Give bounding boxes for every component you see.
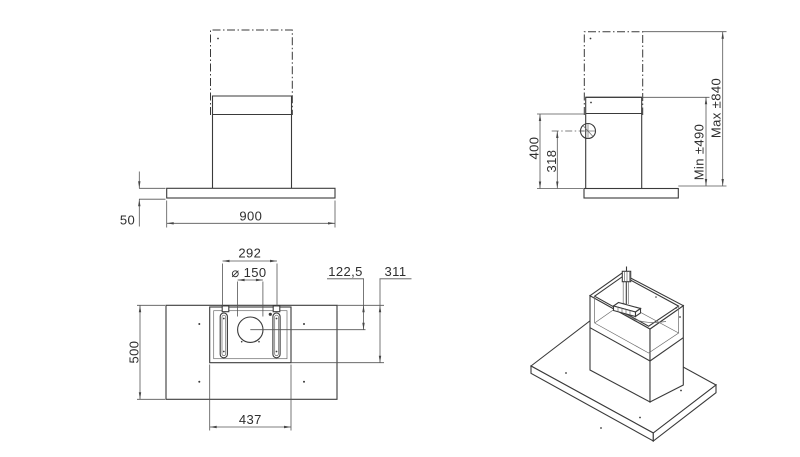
side-max-height-dimension: Max ±840 (643, 32, 727, 186)
front-upper-chimney (211, 30, 293, 115)
plan-view: 292 ⌀ 150 122,5 311 (127, 246, 412, 431)
side-318-dimension: 318 (544, 131, 559, 189)
technical-drawing-page: 50 900 (0, 0, 800, 457)
front-canopy-thickness-dimension: 50 (120, 172, 166, 228)
front-view: 50 900 (120, 30, 335, 228)
dim-label-400: 400 (527, 137, 542, 160)
dim-label-900: 900 (239, 209, 262, 224)
dim-label-122-5: 122,5 (328, 264, 363, 279)
front-lower-chimney (213, 96, 292, 188)
plan-311-dimension: 311 (379, 264, 412, 363)
plan-duct-diameter-dimension: ⌀ 150 (231, 265, 266, 317)
front-canopy-width-dimension: 900 (167, 201, 335, 228)
isometric-view (531, 267, 716, 442)
dim-label-318: 318 (544, 150, 559, 173)
dim-label-500: 500 (127, 341, 142, 364)
dim-label-diameter-150: ⌀ 150 (231, 265, 266, 280)
side-min-height-dimension: Min ±490 (643, 97, 710, 186)
side-upper-chimney (584, 32, 642, 115)
plan-depth-dimension: 500 (127, 305, 166, 399)
dim-label-311: 311 (385, 264, 407, 279)
dim-label-437: 437 (239, 412, 262, 427)
side-canopy (584, 189, 678, 199)
dim-label-min: Min ±490 (692, 124, 707, 181)
plan-122-5-dimension: 122,5 (327, 264, 365, 330)
dim-label-max: Max ±840 (709, 78, 724, 138)
side-lower-chimney (586, 97, 642, 188)
side-view: 400 318 Min ±490 Max ±840 (527, 32, 727, 198)
plan-box-width-dimension: 437 (210, 365, 291, 431)
cooker-hood-drawing: 50 900 (0, 0, 800, 457)
front-canopy (167, 188, 335, 198)
dim-label-50: 50 (120, 213, 135, 228)
dim-label-292: 292 (238, 246, 261, 261)
